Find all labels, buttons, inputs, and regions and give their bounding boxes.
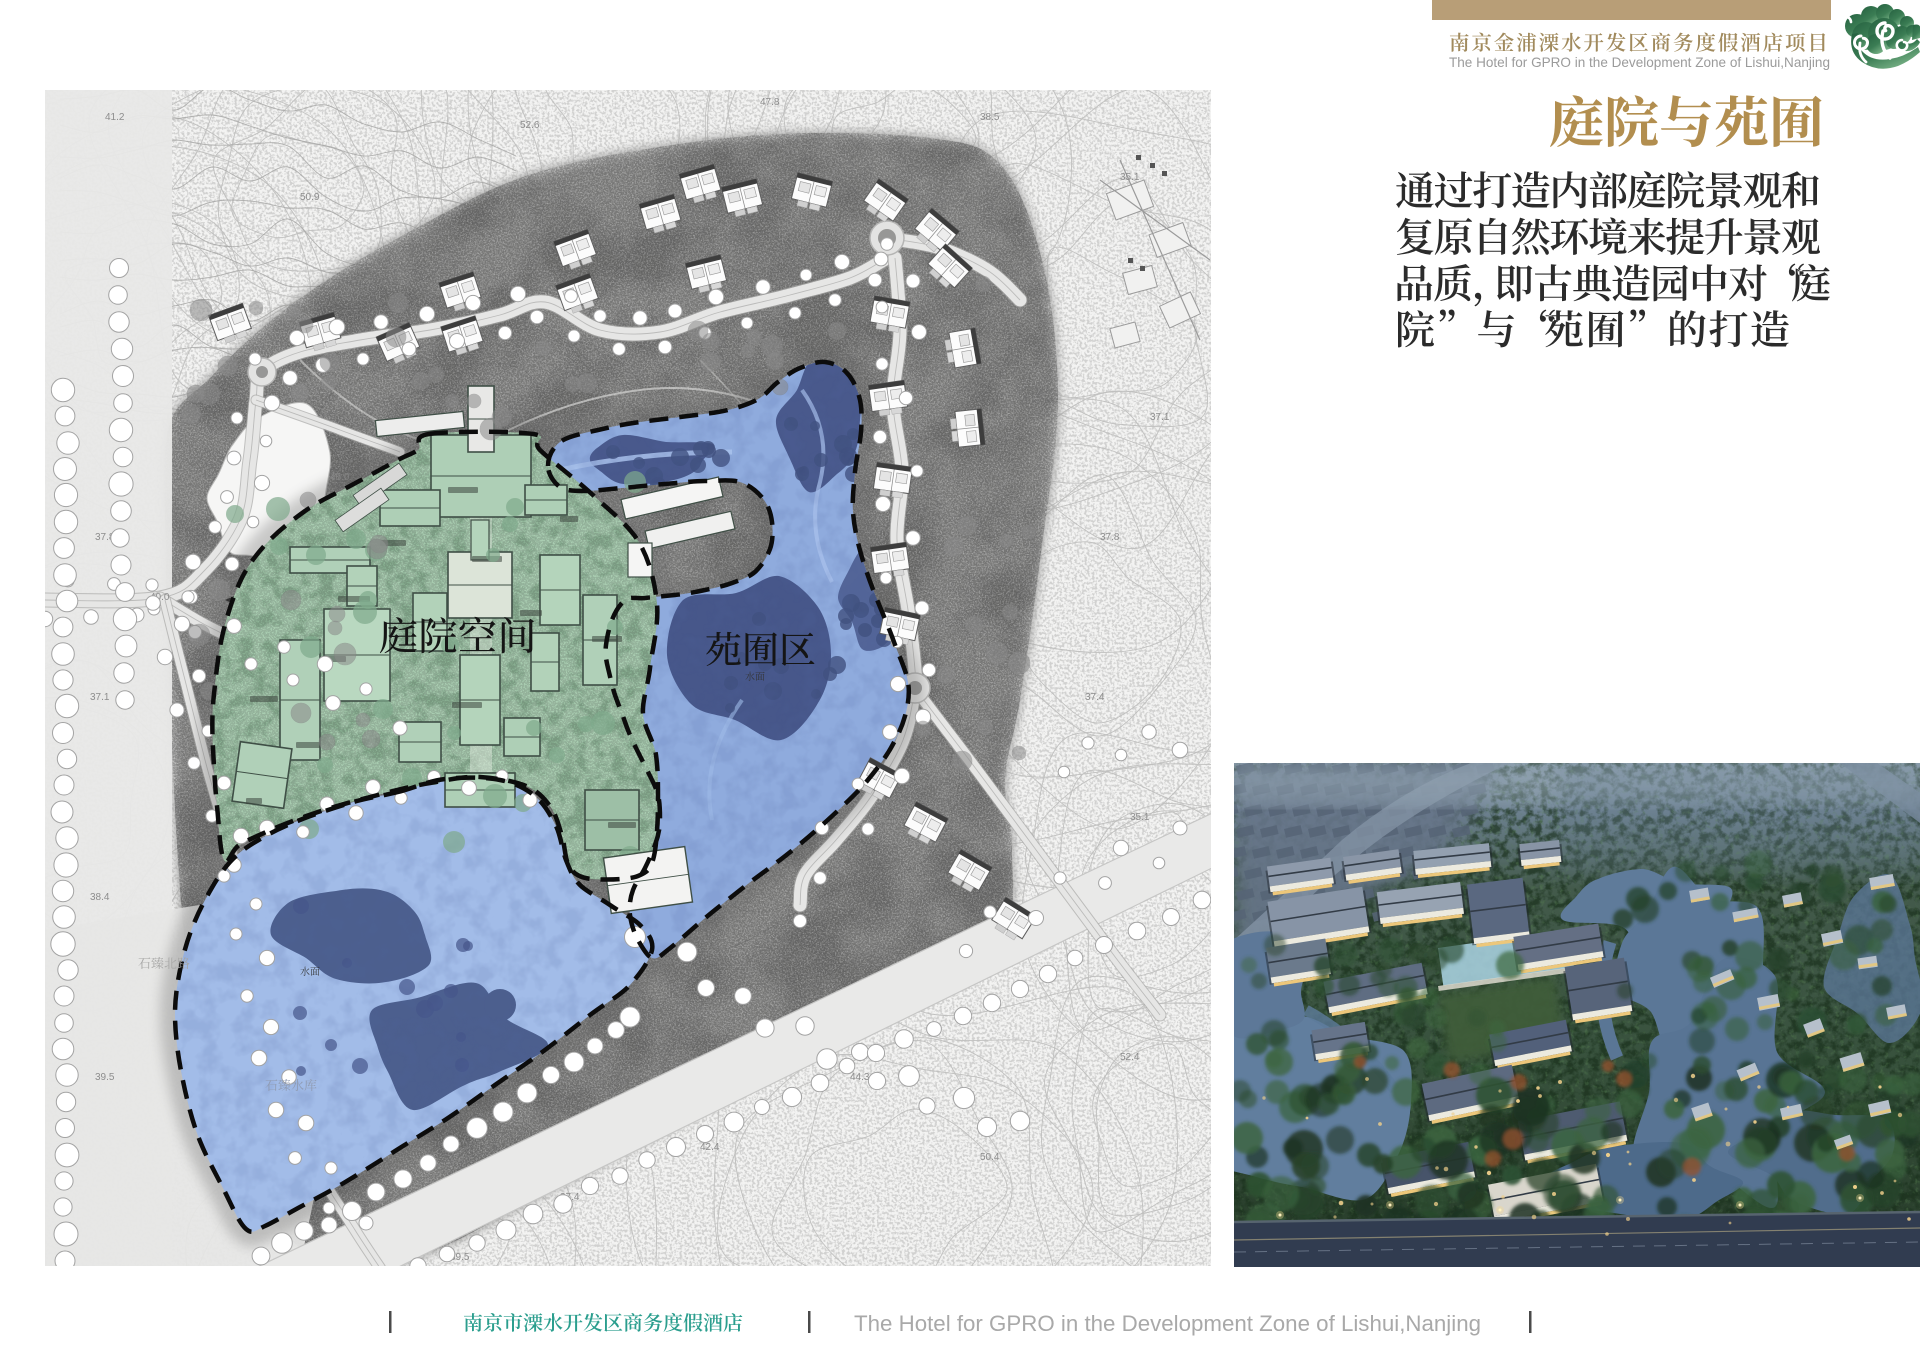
svg-text:35.1: 35.1 [1120, 172, 1140, 183]
svg-text:44.3: 44.3 [850, 1072, 870, 1083]
svg-text:50.4: 50.4 [980, 1152, 1000, 1163]
svg-text:39.5: 39.5 [95, 1072, 115, 1083]
svg-text:38.4: 38.4 [90, 892, 110, 903]
svg-text:42.4: 42.4 [700, 1142, 720, 1153]
svg-text:37.1: 37.1 [1150, 412, 1170, 423]
svg-text:50.9: 50.9 [300, 192, 320, 203]
svg-text:52.6: 52.6 [520, 120, 540, 131]
svg-text:The Hotel for GPRO in the Deve: The Hotel for GPRO in the Development Zo… [854, 1311, 1481, 1336]
svg-text:35.1: 35.1 [1130, 812, 1150, 823]
svg-text:37.1: 37.1 [90, 692, 110, 703]
svg-text:52.4: 52.4 [1120, 1052, 1140, 1063]
svg-text:38.5: 38.5 [980, 112, 1000, 123]
svg-text:47.8: 47.8 [760, 97, 780, 108]
svg-text:The Hotel for GPRO in the Deve: The Hotel for GPRO in the Development Zo… [1449, 54, 1830, 70]
svg-text:37.8: 37.8 [1100, 532, 1120, 543]
svg-text:37.4: 37.4 [1085, 692, 1105, 703]
svg-text:41.2: 41.2 [105, 112, 125, 123]
